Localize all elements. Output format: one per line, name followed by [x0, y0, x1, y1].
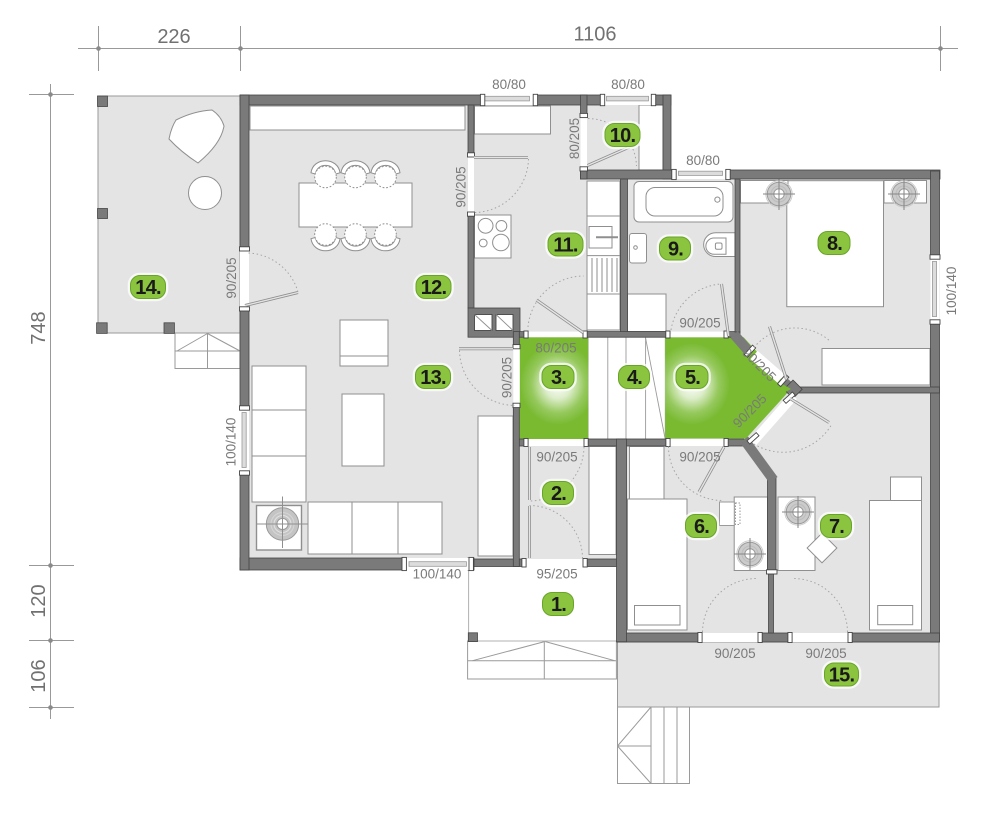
svg-text:80/205: 80/205	[567, 118, 582, 159]
svg-text:6.: 6.	[694, 516, 709, 538]
svg-text:90/205: 90/205	[805, 646, 846, 661]
svg-text:15.: 15.	[829, 665, 855, 687]
svg-text:120: 120	[28, 584, 50, 617]
svg-text:95/205: 95/205	[536, 567, 577, 582]
svg-text:80/205: 80/205	[535, 341, 576, 356]
svg-text:1.: 1.	[551, 594, 566, 616]
svg-text:100/140: 100/140	[224, 418, 239, 467]
svg-text:8.: 8.	[827, 233, 842, 255]
svg-text:5.: 5.	[685, 367, 700, 389]
svg-text:11.: 11.	[553, 235, 578, 257]
svg-text:90/205: 90/205	[224, 257, 239, 298]
svg-text:90/205: 90/205	[714, 646, 755, 661]
svg-text:90/205: 90/205	[536, 450, 577, 465]
svg-text:1106: 1106	[573, 24, 616, 46]
svg-text:90/205: 90/205	[679, 450, 720, 465]
svg-text:90/205: 90/205	[500, 357, 515, 398]
svg-text:226: 226	[157, 26, 190, 48]
svg-text:90/205: 90/205	[679, 316, 720, 331]
svg-text:100/140: 100/140	[944, 267, 959, 316]
svg-text:14.: 14.	[135, 277, 161, 299]
svg-text:748: 748	[28, 311, 50, 344]
svg-text:4.: 4.	[627, 367, 642, 389]
svg-text:80/80: 80/80	[611, 77, 645, 92]
svg-text:12.: 12.	[421, 277, 447, 299]
svg-text:9.: 9.	[668, 239, 683, 261]
svg-text:100/140: 100/140	[413, 567, 462, 582]
svg-text:10.: 10.	[610, 125, 636, 147]
svg-text:90/205: 90/205	[454, 166, 469, 207]
svg-text:13.: 13.	[420, 367, 446, 389]
svg-text:106: 106	[28, 659, 50, 692]
svg-text:3.: 3.	[551, 367, 566, 389]
svg-text:2.: 2.	[551, 483, 566, 505]
svg-text:7.: 7.	[829, 516, 844, 538]
svg-text:80/80: 80/80	[686, 153, 720, 168]
svg-text:80/80: 80/80	[492, 77, 526, 92]
